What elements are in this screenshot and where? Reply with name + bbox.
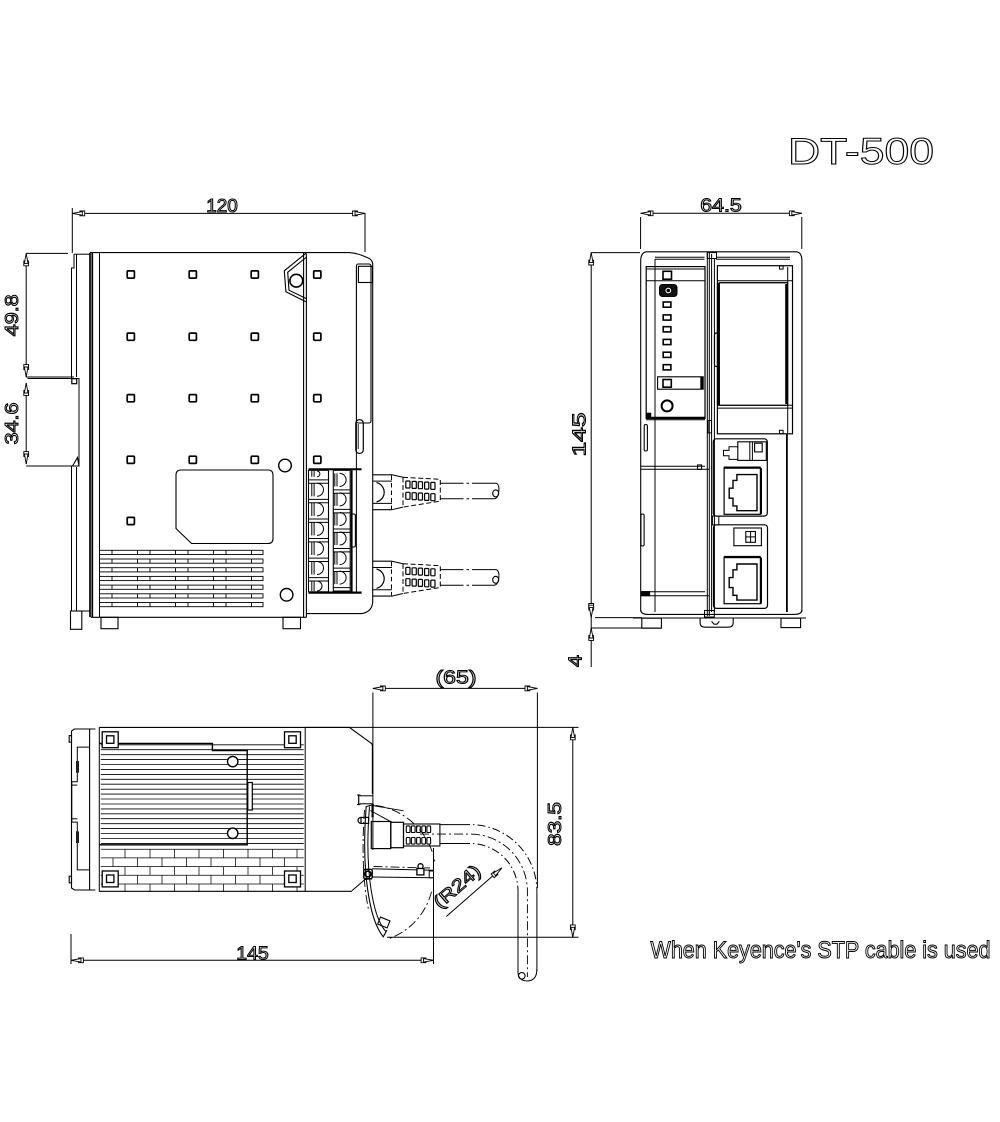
svg-text:145: 145 bbox=[236, 943, 269, 963]
svg-text:4: 4 bbox=[566, 655, 586, 667]
svg-text:49.8: 49.8 bbox=[2, 294, 22, 336]
svg-text:64.5: 64.5 bbox=[700, 196, 742, 216]
svg-text:145: 145 bbox=[570, 413, 590, 457]
svg-text:When Keyence's STP cable is us: When Keyence's STP cable is used bbox=[651, 937, 991, 964]
svg-text:DT-500: DT-500 bbox=[788, 131, 934, 172]
svg-text:34.6: 34.6 bbox=[2, 403, 22, 445]
svg-text:(R24): (R24) bbox=[429, 861, 484, 913]
svg-text:83.5: 83.5 bbox=[545, 802, 565, 846]
svg-text:(65): (65) bbox=[436, 668, 477, 688]
svg-text:120: 120 bbox=[206, 196, 238, 216]
